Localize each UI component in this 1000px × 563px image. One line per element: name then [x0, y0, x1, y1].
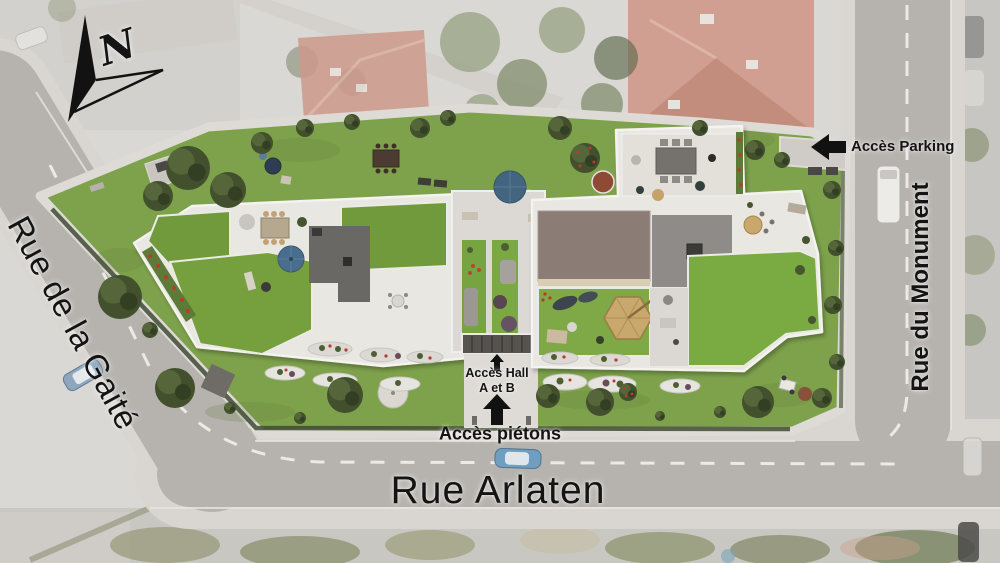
- access-pedestrian-label: Accès piétons: [439, 424, 561, 445]
- hall-entrance: [462, 334, 540, 354]
- access-hall-label: Accès Hall A et B: [465, 366, 528, 396]
- van-white-monument: [877, 166, 900, 223]
- parasol-red: [592, 171, 614, 193]
- access-parking-label: Accès Parking: [851, 138, 954, 155]
- access-hall-line1: Accès Hall: [465, 366, 528, 381]
- site-plan-scene: N Rue de la Gaité Rue Arlaten Rue du Mon…: [0, 0, 1000, 563]
- existing-house-roof-large: [628, 0, 814, 132]
- street-label-arlaten: Rue Arlaten: [391, 469, 606, 513]
- street-label-monument: Rue du Monument: [907, 182, 935, 391]
- access-hall-line2: A et B: [465, 381, 528, 396]
- car-blue-arlaten: [495, 448, 542, 469]
- parasol-tan: [744, 216, 762, 234]
- roof-brown: [538, 211, 650, 281]
